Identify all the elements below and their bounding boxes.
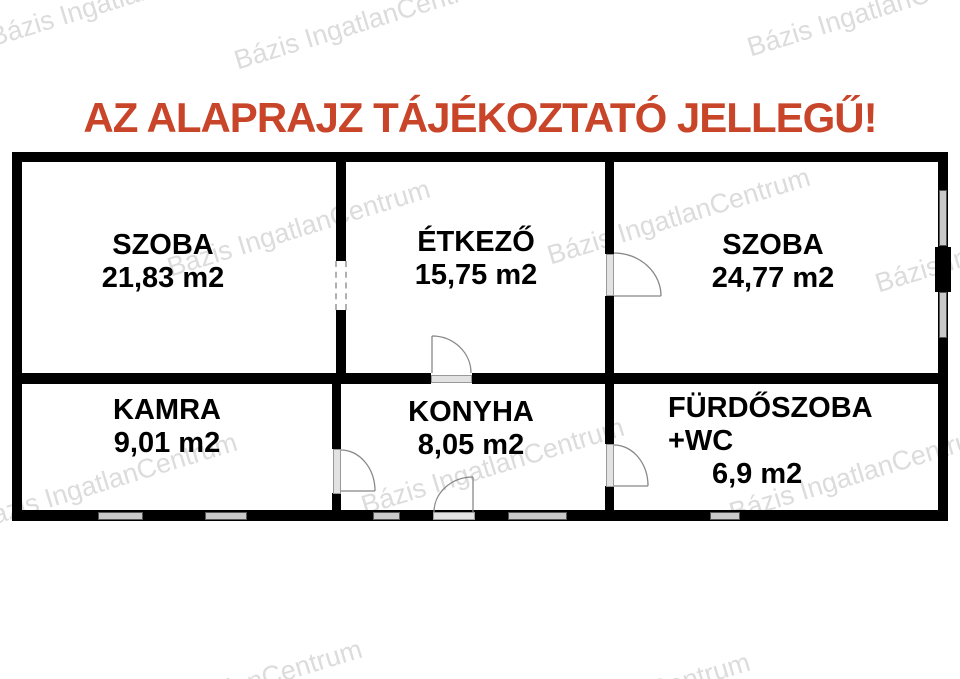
room-area: 24,77 m2 [648,262,898,295]
window-bottom-3 [373,512,400,520]
wall-szoba-etkezo-upper [336,162,346,261]
wall-szoba-etkezo-lower [336,310,346,373]
room-label-konyha: KONYHA 8,05 m2 [346,396,596,462]
room-area: 9,01 m2 [42,427,292,460]
room-label-furdoszoba: FÜRDŐSZOBA +WC 6,9 m2 [668,392,928,491]
wall-outer-top [12,152,948,162]
wall-etkezo-szoba2-upper [605,162,614,254]
window-bottom-4 [508,512,567,520]
watermark-text: Bázis IngatlanCentrum [0,0,256,52]
disclaimer-title: AZ ALAPRAJZ TÁJÉKOZTATÓ JELLEGŰ! [0,94,960,142]
room-name: SZOBA [38,229,288,262]
dashed-opening-szoba-etkezo [335,261,347,310]
watermark-text: Bázis IngatlanCentrum [231,0,501,75]
door-swing-konyha-furdo [614,445,648,486]
room-name: KAMRA [42,394,292,427]
room-name: SZOBA [648,229,898,262]
wall-kamra-konyha-upper [332,384,341,449]
room-extra: +WC [668,425,928,458]
window-right-2 [939,292,947,338]
room-area: 15,75 m2 [351,259,601,292]
room-label-szoba-1: SZOBA 21,83 m2 [38,229,288,295]
wall-konyha-furdo-lower [605,486,614,510]
watermark-text: Bázis IngatlanCentrum [484,647,754,679]
wall-mid-right [472,373,938,384]
wall-window-pier-right [935,247,951,292]
window-bottom-5 [710,512,740,520]
door-threshold-etkezo-szoba [606,254,614,296]
room-area: 6,9 m2 [668,458,928,491]
room-name: FÜRDŐSZOBA [668,392,928,425]
wall-kamra-konyha-lower [332,493,341,510]
door-threshold-kamra-konyha [333,449,341,494]
window-right-1 [939,190,947,246]
door-swing-etkezo-konyha [432,336,471,373]
window-bottom-1 [98,512,143,520]
wall-mid-left [22,373,431,384]
room-label-szoba-2: SZOBA 24,77 m2 [648,229,898,295]
room-label-etkezo: ÉTKEZŐ 15,75 m2 [351,226,601,292]
watermark-text: Bázis IngatlanCentrum [744,0,960,62]
room-label-kamra: KAMRA 9,01 m2 [42,394,292,460]
wall-konyha-furdo-upper [605,384,614,444]
room-name: KONYHA [346,396,596,429]
wall-outer-bottom [12,510,948,521]
door-threshold-etkezo-konyha [431,375,472,383]
wall-outer-left [12,152,22,521]
door-threshold-konyha-furdo [606,444,614,487]
room-area: 8,05 m2 [346,429,596,462]
door-threshold-entrance [433,512,475,520]
room-name: ÉTKEZŐ [351,226,601,259]
floorplan-image: Bázis IngatlanCentrum Bázis IngatlanCent… [0,0,960,679]
room-area: 21,83 m2 [38,262,288,295]
watermark-text: Bázis IngatlanCentrum [96,634,366,679]
window-bottom-2 [205,512,247,520]
wall-etkezo-szoba2-lower [605,296,614,373]
